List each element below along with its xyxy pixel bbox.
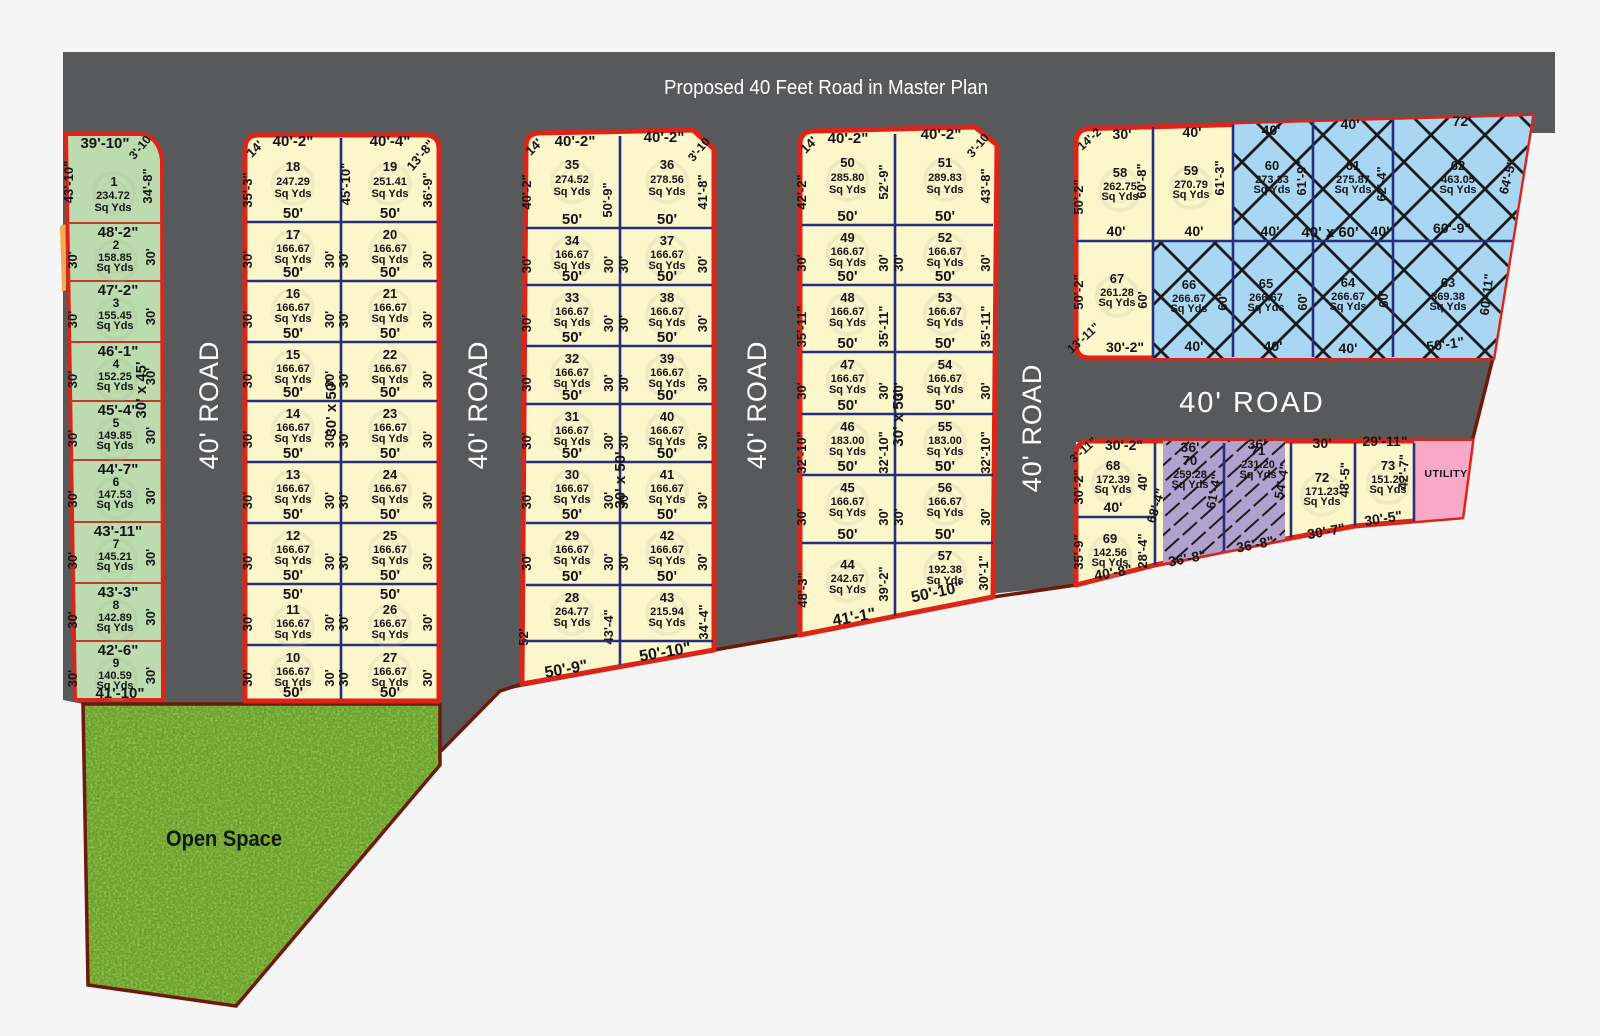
svg-text:30': 30' <box>240 492 255 510</box>
svg-text:42'-2": 42'-2" <box>794 174 809 209</box>
svg-text:30': 30' <box>695 256 710 274</box>
svg-text:32: 32 <box>565 351 579 366</box>
svg-text:30': 30' <box>978 382 993 400</box>
svg-text:30': 30' <box>891 254 906 272</box>
svg-text:30': 30' <box>65 371 80 389</box>
svg-text:50': 50' <box>562 211 582 228</box>
svg-text:11: 11 <box>286 602 300 617</box>
svg-text:247.29: 247.29 <box>276 176 310 188</box>
svg-text:1: 1 <box>110 174 117 189</box>
svg-text:28'-4": 28'-4" <box>1135 533 1150 568</box>
svg-text:34'-4": 34'-4" <box>696 604 711 639</box>
svg-text:50'-2": 50'-2" <box>1071 179 1086 214</box>
svg-text:50': 50' <box>283 264 303 281</box>
svg-text:Sq Yds: Sq Yds <box>96 561 133 573</box>
svg-text:30': 30' <box>695 374 710 392</box>
svg-text:14: 14 <box>286 406 301 421</box>
svg-text:34: 34 <box>565 233 580 248</box>
svg-text:30': 30' <box>601 374 616 392</box>
svg-text:61'-3": 61'-3" <box>1212 160 1227 195</box>
svg-text:30': 30' <box>601 432 616 450</box>
svg-text:39'-10": 39'-10" <box>80 135 129 152</box>
svg-text:40' ROAD: 40' ROAD <box>742 341 772 470</box>
svg-text:20: 20 <box>383 227 397 242</box>
svg-text:19: 19 <box>383 159 397 174</box>
svg-text:40'-2": 40'-2" <box>555 133 596 150</box>
svg-text:48'-2": 48'-2" <box>98 224 139 241</box>
svg-text:30': 30' <box>143 667 158 685</box>
svg-text:30': 30' <box>336 492 351 510</box>
svg-text:50': 50' <box>562 329 582 346</box>
svg-text:40'-2": 40'-2" <box>921 126 962 143</box>
svg-text:35'-11": 35'-11" <box>876 306 891 348</box>
svg-text:32'-10": 32'-10" <box>794 431 809 474</box>
svg-text:31: 31 <box>565 409 579 424</box>
svg-text:43'-10": 43'-10" <box>61 161 76 204</box>
svg-text:30': 30' <box>695 553 710 571</box>
svg-text:30': 30' <box>336 553 351 571</box>
svg-text:30': 30' <box>336 311 351 329</box>
svg-text:30': 30' <box>240 553 255 571</box>
svg-text:278.56: 278.56 <box>650 174 684 186</box>
svg-text:40' ROAD: 40' ROAD <box>1179 387 1325 419</box>
svg-text:30': 30' <box>240 431 255 449</box>
svg-text:50': 50' <box>380 325 400 342</box>
svg-text:50': 50' <box>283 325 303 342</box>
svg-text:Sq Yds: Sq Yds <box>371 555 408 567</box>
svg-text:274.52: 274.52 <box>555 174 589 186</box>
svg-text:50': 50' <box>657 211 677 228</box>
svg-text:50': 50' <box>283 205 303 222</box>
svg-text:234.72: 234.72 <box>96 190 130 202</box>
svg-text:Sq Yds: Sq Yds <box>648 555 685 567</box>
svg-text:61'-9": 61'-9" <box>1294 160 1309 195</box>
svg-text:Sq Yds: Sq Yds <box>1253 184 1290 196</box>
svg-text:30': 30' <box>601 315 616 333</box>
svg-text:30': 30' <box>420 553 435 571</box>
svg-text:40' x 60': 40' x 60' <box>1301 224 1358 241</box>
svg-text:35: 35 <box>565 157 579 172</box>
svg-text:Sq Yds: Sq Yds <box>926 384 963 396</box>
svg-text:42'-6": 42'-6" <box>98 642 139 659</box>
svg-text:22: 22 <box>383 347 397 362</box>
svg-text:44'-7": 44'-7" <box>98 461 139 478</box>
svg-text:15: 15 <box>286 347 300 362</box>
svg-text:70: 70 <box>1183 453 1197 468</box>
svg-text:55: 55 <box>938 419 952 434</box>
svg-text:69: 69 <box>1103 531 1117 546</box>
svg-text:67: 67 <box>1110 271 1124 286</box>
svg-text:Sq Yds: Sq Yds <box>1247 302 1284 314</box>
svg-text:Open Space: Open Space <box>166 826 282 851</box>
svg-text:40': 40' <box>1135 473 1150 491</box>
svg-text:Sq Yds: Sq Yds <box>553 555 590 567</box>
svg-text:59: 59 <box>1184 163 1198 178</box>
svg-text:38: 38 <box>660 290 674 305</box>
svg-text:Sq Yds: Sq Yds <box>96 381 133 393</box>
svg-text:40'-2": 40'-2" <box>273 133 314 150</box>
svg-text:30': 30' <box>322 251 337 269</box>
svg-text:40'-4": 40'-4" <box>370 133 411 150</box>
svg-text:36': 36' <box>1248 436 1267 452</box>
svg-text:30': 30' <box>240 371 255 389</box>
svg-text:Sq Yds: Sq Yds <box>1439 184 1476 196</box>
svg-text:30': 30' <box>420 371 435 389</box>
svg-text:50': 50' <box>935 397 955 414</box>
svg-text:30': 30' <box>65 311 80 329</box>
svg-text:Sq Yds: Sq Yds <box>553 317 590 329</box>
svg-text:Sq Yds: Sq Yds <box>371 629 408 641</box>
svg-text:63: 63 <box>1441 275 1455 290</box>
svg-text:30': 30' <box>420 669 435 687</box>
svg-text:Sq Yds: Sq Yds <box>829 446 866 458</box>
svg-text:30': 30' <box>143 308 158 326</box>
svg-text:60: 60 <box>1265 158 1279 173</box>
svg-text:50': 50' <box>657 268 677 285</box>
svg-text:25: 25 <box>383 528 397 543</box>
svg-text:60'-9": 60'-9" <box>1433 220 1471 236</box>
svg-text:39: 39 <box>660 351 674 366</box>
svg-text:Sq Yds: Sq Yds <box>829 384 866 396</box>
svg-text:40': 40' <box>1371 223 1390 239</box>
svg-text:36'-9": 36'-9" <box>420 172 435 207</box>
svg-text:Sq Yds: Sq Yds <box>1101 191 1138 203</box>
svg-text:Sq Yds: Sq Yds <box>648 617 685 629</box>
svg-text:50'-9": 50'-9" <box>600 182 615 217</box>
svg-text:32'-10": 32'-10" <box>876 431 891 474</box>
svg-text:Sq Yds: Sq Yds <box>1094 484 1131 496</box>
svg-text:41: 41 <box>660 467 674 482</box>
svg-text:30': 30' <box>65 490 80 508</box>
svg-text:73: 73 <box>1381 458 1395 473</box>
svg-text:30': 30' <box>876 254 891 272</box>
svg-text:60': 60' <box>1295 293 1310 311</box>
svg-text:62'-4": 62'-4" <box>1374 166 1389 201</box>
svg-text:21: 21 <box>383 286 397 301</box>
svg-text:30' x 50': 30' x 50' <box>890 389 907 446</box>
svg-text:12: 12 <box>286 528 300 543</box>
svg-text:48: 48 <box>840 290 854 305</box>
svg-text:50': 50' <box>837 458 857 475</box>
svg-text:30': 30' <box>519 432 534 450</box>
svg-text:50': 50' <box>283 586 303 603</box>
svg-text:40'-2": 40'-2" <box>828 130 869 147</box>
svg-text:50': 50' <box>562 506 582 523</box>
svg-text:30': 30' <box>616 553 631 571</box>
svg-text:50': 50' <box>380 384 400 401</box>
svg-text:50': 50' <box>380 684 400 701</box>
svg-text:30': 30' <box>519 374 534 392</box>
svg-text:50': 50' <box>380 264 400 281</box>
svg-text:Sq Yds: Sq Yds <box>96 622 133 634</box>
svg-text:66: 66 <box>1182 277 1196 292</box>
svg-text:57: 57 <box>938 548 952 563</box>
svg-text:50': 50' <box>837 335 857 352</box>
svg-text:Sq Yds: Sq Yds <box>648 186 685 198</box>
svg-text:Sq Yds: Sq Yds <box>829 584 866 596</box>
svg-text:Sq Yds: Sq Yds <box>371 313 408 325</box>
svg-text:50': 50' <box>283 384 303 401</box>
svg-text:30' x 45': 30' x 45' <box>133 361 150 418</box>
svg-text:39'-2": 39'-2" <box>876 566 891 601</box>
svg-text:30' x 50': 30' x 50' <box>323 379 340 436</box>
svg-text:50': 50' <box>657 445 677 462</box>
svg-text:Sq Yds: Sq Yds <box>1239 469 1276 481</box>
svg-text:50': 50' <box>562 268 582 285</box>
svg-text:50': 50' <box>562 445 582 462</box>
svg-text:42'-7": 42'-7" <box>1395 454 1411 490</box>
svg-text:40: 40 <box>660 409 674 424</box>
svg-text:30': 30' <box>322 311 337 329</box>
svg-text:43: 43 <box>660 590 674 605</box>
svg-text:Sq Yds: Sq Yds <box>274 433 311 445</box>
svg-text:30': 30' <box>420 431 435 449</box>
svg-text:30': 30' <box>616 432 631 450</box>
svg-text:58: 58 <box>1113 165 1127 180</box>
svg-text:53: 53 <box>938 290 952 305</box>
svg-text:50': 50' <box>380 506 400 523</box>
svg-text:45: 45 <box>840 480 854 495</box>
svg-text:47: 47 <box>840 357 854 372</box>
svg-text:40' ROAD: 40' ROAD <box>463 341 493 470</box>
svg-text:50': 50' <box>283 684 303 701</box>
svg-text:30': 30' <box>65 251 80 269</box>
svg-text:Sq Yds: Sq Yds <box>274 313 311 325</box>
svg-text:30': 30' <box>143 549 158 567</box>
svg-text:50'-2": 50'-2" <box>1071 274 1086 309</box>
svg-text:30'-2": 30'-2" <box>1105 437 1143 453</box>
svg-text:Sq Yds: Sq Yds <box>371 494 408 506</box>
svg-text:Sq Yds: Sq Yds <box>1429 301 1466 313</box>
svg-text:50': 50' <box>657 506 677 523</box>
svg-text:Sq Yds: Sq Yds <box>96 320 133 332</box>
svg-text:30'-2": 30'-2" <box>1106 339 1144 355</box>
svg-text:Sq Yds: Sq Yds <box>926 317 963 329</box>
svg-text:30': 30' <box>322 553 337 571</box>
svg-text:50': 50' <box>283 567 303 584</box>
svg-text:30': 30' <box>695 492 710 510</box>
svg-text:16: 16 <box>286 286 300 301</box>
svg-text:Proposed 40 Feet Road in Maste: Proposed 40 Feet Road in Master Plan <box>664 77 988 99</box>
svg-text:Sq Yds: Sq Yds <box>1329 301 1366 313</box>
svg-text:Sq Yds: Sq Yds <box>96 499 133 511</box>
svg-text:30': 30' <box>240 614 255 632</box>
svg-text:50': 50' <box>837 526 857 543</box>
svg-text:44: 44 <box>840 557 855 572</box>
svg-text:Sq Yds: Sq Yds <box>1303 496 1340 508</box>
svg-text:30': 30' <box>616 374 631 392</box>
svg-text:30': 30' <box>240 311 255 329</box>
svg-text:Sq Yds: Sq Yds <box>829 184 866 196</box>
svg-text:37: 37 <box>660 233 674 248</box>
svg-text:30': 30' <box>143 427 158 445</box>
svg-text:56: 56 <box>938 480 952 495</box>
svg-text:30': 30' <box>240 669 255 687</box>
svg-text:41'-10": 41'-10" <box>95 685 144 702</box>
svg-text:62: 62 <box>1451 158 1465 173</box>
svg-text:50': 50' <box>837 208 857 225</box>
svg-text:48'-5": 48'-5" <box>1336 462 1352 498</box>
svg-text:30': 30' <box>794 508 809 526</box>
svg-text:50': 50' <box>935 268 955 285</box>
svg-text:Sq Yds: Sq Yds <box>648 494 685 506</box>
svg-text:30': 30' <box>420 311 435 329</box>
svg-text:50: 50 <box>840 155 854 170</box>
svg-text:30': 30' <box>601 256 616 274</box>
svg-text:30': 30' <box>616 315 631 333</box>
svg-text:30': 30' <box>65 670 80 688</box>
svg-text:285.80: 285.80 <box>831 172 865 184</box>
svg-text:72': 72' <box>1453 113 1472 129</box>
svg-text:30': 30' <box>336 251 351 269</box>
svg-text:50': 50' <box>837 397 857 414</box>
svg-text:43'-3": 43'-3" <box>98 584 139 601</box>
svg-text:30': 30' <box>322 614 337 632</box>
svg-text:29: 29 <box>565 528 579 543</box>
svg-text:30': 30' <box>336 669 351 687</box>
svg-text:30': 30' <box>891 508 906 526</box>
svg-text:30': 30' <box>322 492 337 510</box>
svg-text:50': 50' <box>837 268 857 285</box>
svg-text:10: 10 <box>286 650 300 665</box>
svg-text:13: 13 <box>286 467 300 482</box>
svg-text:34'-8": 34'-8" <box>140 168 155 203</box>
svg-text:Sq Yds: Sq Yds <box>1170 303 1207 315</box>
svg-text:30': 30' <box>978 254 993 272</box>
svg-text:29'-11": 29'-11" <box>1362 433 1407 449</box>
svg-text:50': 50' <box>283 445 303 462</box>
svg-text:54: 54 <box>938 357 953 372</box>
svg-text:30': 30' <box>240 251 255 269</box>
svg-text:Sq Yds: Sq Yds <box>1172 189 1209 201</box>
svg-text:30': 30' <box>143 248 158 266</box>
svg-text:17: 17 <box>286 227 300 242</box>
svg-text:35'-11": 35'-11" <box>794 306 809 348</box>
svg-text:40': 40' <box>1185 338 1204 354</box>
svg-text:50': 50' <box>562 568 582 585</box>
svg-text:50': 50' <box>380 445 400 462</box>
svg-text:30': 30' <box>420 251 435 269</box>
svg-text:40'-2": 40'-2" <box>644 129 685 146</box>
svg-text:47'-2": 47'-2" <box>98 282 139 299</box>
svg-text:40': 40' <box>1264 338 1283 354</box>
svg-text:60': 60' <box>1215 293 1230 311</box>
svg-text:28: 28 <box>565 590 579 605</box>
svg-text:Sq Yds: Sq Yds <box>926 184 963 196</box>
svg-text:Sq Yds: Sq Yds <box>829 317 866 329</box>
svg-text:64: 64 <box>1341 275 1356 290</box>
svg-text:30'-1": 30'-1" <box>976 555 991 590</box>
svg-text:30' x 50': 30' x 50' <box>612 451 629 508</box>
svg-text:Sq Yds: Sq Yds <box>96 262 133 274</box>
svg-text:49: 49 <box>840 230 854 245</box>
svg-text:45'-10": 45'-10" <box>338 163 353 206</box>
svg-text:35'-3": 35'-3" <box>240 172 255 207</box>
svg-text:30': 30' <box>695 315 710 333</box>
svg-text:30': 30' <box>322 669 337 687</box>
svg-text:36': 36' <box>1181 439 1200 455</box>
svg-text:30': 30' <box>65 552 80 570</box>
svg-text:Sq Yds: Sq Yds <box>96 440 133 452</box>
svg-text:68: 68 <box>1106 458 1120 473</box>
svg-text:40'-2": 40'-2" <box>519 174 534 209</box>
svg-text:40': 40' <box>1341 116 1360 132</box>
svg-text:35'-9": 35'-9" <box>1071 534 1086 569</box>
svg-text:30': 30' <box>616 256 631 274</box>
svg-text:Sq Yds: Sq Yds <box>926 507 963 519</box>
svg-text:40': 40' <box>1104 499 1123 515</box>
svg-text:36: 36 <box>660 157 674 172</box>
svg-text:UTILITY: UTILITY <box>1424 468 1467 480</box>
svg-text:30': 30' <box>876 508 891 526</box>
svg-text:30': 30' <box>519 256 534 274</box>
svg-text:Sq Yds: Sq Yds <box>648 317 685 329</box>
svg-text:Sq Yds: Sq Yds <box>274 188 311 200</box>
svg-text:50': 50' <box>935 458 955 475</box>
svg-text:52'-9": 52'-9" <box>876 164 891 199</box>
svg-text:48'-3": 48'-3" <box>795 572 810 607</box>
svg-text:35'-11": 35'-11" <box>978 306 993 348</box>
svg-text:50': 50' <box>283 506 303 523</box>
svg-text:23: 23 <box>383 406 397 421</box>
svg-text:Sq Yds: Sq Yds <box>553 494 590 506</box>
svg-text:60': 60' <box>1376 290 1391 308</box>
svg-text:32'-10": 32'-10" <box>978 431 993 474</box>
svg-text:30': 30' <box>336 614 351 632</box>
svg-text:251.41: 251.41 <box>373 176 407 188</box>
svg-text:Sq Yds: Sq Yds <box>926 446 963 458</box>
svg-text:30': 30' <box>601 553 616 571</box>
svg-text:30': 30' <box>876 382 891 400</box>
svg-text:43'-4": 43'-4" <box>601 609 616 644</box>
svg-text:Sq Yds: Sq Yds <box>1334 184 1371 196</box>
svg-text:Sq Yds: Sq Yds <box>274 494 311 506</box>
svg-text:51: 51 <box>938 155 952 170</box>
svg-text:30': 30' <box>65 430 80 448</box>
svg-text:40': 40' <box>1107 223 1126 239</box>
svg-text:40': 40' <box>1339 340 1358 356</box>
svg-text:40': 40' <box>1185 223 1204 239</box>
svg-text:30': 30' <box>143 608 158 626</box>
svg-text:18: 18 <box>286 159 300 174</box>
svg-text:52: 52 <box>938 230 952 245</box>
svg-text:Sq Yds: Sq Yds <box>553 186 590 198</box>
svg-text:Sq Yds: Sq Yds <box>371 433 408 445</box>
svg-text:Sq Yds: Sq Yds <box>553 617 590 629</box>
svg-text:72: 72 <box>1315 470 1329 485</box>
svg-text:50': 50' <box>380 567 400 584</box>
svg-text:50': 50' <box>657 568 677 585</box>
svg-text:Sq Yds: Sq Yds <box>274 555 311 567</box>
svg-text:Sq Yds: Sq Yds <box>829 507 866 519</box>
svg-text:30': 30' <box>1313 435 1332 451</box>
svg-text:43'-8": 43'-8" <box>978 168 993 203</box>
svg-text:30': 30' <box>794 382 809 400</box>
svg-text:30'-2": 30'-2" <box>1071 469 1086 504</box>
svg-text:60': 60' <box>1135 291 1150 309</box>
svg-text:50': 50' <box>935 208 955 225</box>
svg-text:30: 30 <box>565 467 579 482</box>
svg-text:50': 50' <box>380 586 400 603</box>
svg-text:Sq Yds: Sq Yds <box>1171 479 1208 491</box>
svg-text:40': 40' <box>1262 122 1281 138</box>
svg-text:30': 30' <box>143 487 158 505</box>
svg-text:30': 30' <box>420 614 435 632</box>
svg-text:65: 65 <box>1259 276 1273 291</box>
svg-text:24: 24 <box>383 467 398 482</box>
svg-text:30': 30' <box>65 611 80 629</box>
svg-text:Sq Yds: Sq Yds <box>274 629 311 641</box>
